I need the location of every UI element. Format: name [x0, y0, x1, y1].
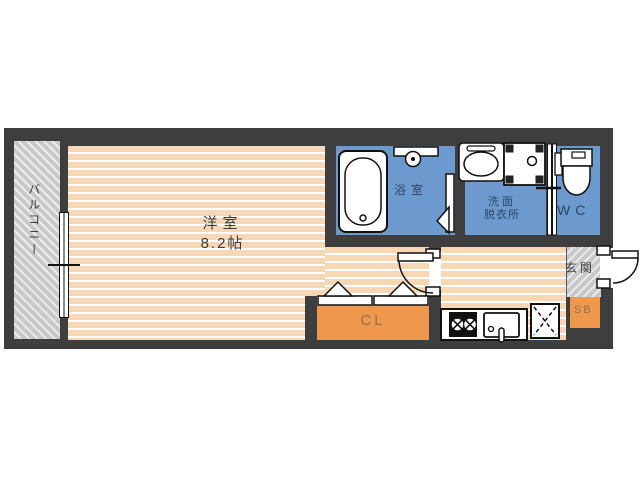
main-room-name: 洋室 — [160, 215, 285, 232]
washroom-area — [465, 146, 546, 235]
entrance-label: 玄関 — [565, 262, 595, 276]
washroom-label: 洗面 脱衣所 — [470, 196, 534, 221]
balcony-label: バルコニー — [26, 183, 40, 258]
floor-plan: バルコニー 洋室 8.2帖 浴室 洗面 脱衣所 WC 玄関 CL SB — [0, 0, 640, 480]
shoebox-label: SB — [574, 304, 593, 317]
washroom-label-line2: 脱衣所 — [470, 209, 534, 222]
hallway-kitchen-area — [441, 247, 566, 340]
bath-label: 浴室 — [394, 184, 428, 198]
main-room-label: 洋室 8.2帖 — [160, 215, 285, 253]
closet-wall-stub — [305, 296, 317, 340]
main-room-size: 8.2帖 — [160, 235, 285, 252]
washroom-label-line1: 洗面 — [470, 196, 534, 209]
wc-label: WC — [557, 202, 590, 218]
wc-area — [549, 146, 600, 235]
closet-label: CL — [340, 312, 406, 329]
